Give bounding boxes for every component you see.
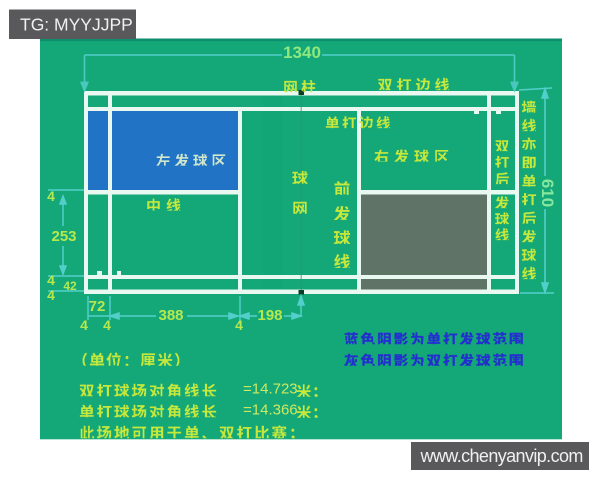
svg-text:4: 4 [47,287,55,303]
svg-text:72: 72 [89,298,106,315]
svg-text:4: 4 [103,317,111,333]
svg-text:4: 4 [47,272,55,288]
svg-text:253: 253 [51,228,76,245]
svg-text:198: 198 [257,307,282,324]
svg-text:=14.366: =14.366 [243,402,298,419]
svg-text:4: 4 [235,317,243,333]
svg-text:4: 4 [80,317,88,333]
svg-text:1340: 1340 [283,43,321,62]
svg-text:=14.723: =14.723 [243,381,298,398]
svg-text:4: 4 [47,188,55,204]
svg-text:TG: MYYJJPP: TG: MYYJJPP [20,15,133,35]
svg-text:388: 388 [158,307,183,324]
svg-text:42: 42 [63,279,77,293]
svg-text:www.chenyanvip.com: www.chenyanvip.com [420,446,583,466]
svg-text:610: 610 [538,179,557,207]
